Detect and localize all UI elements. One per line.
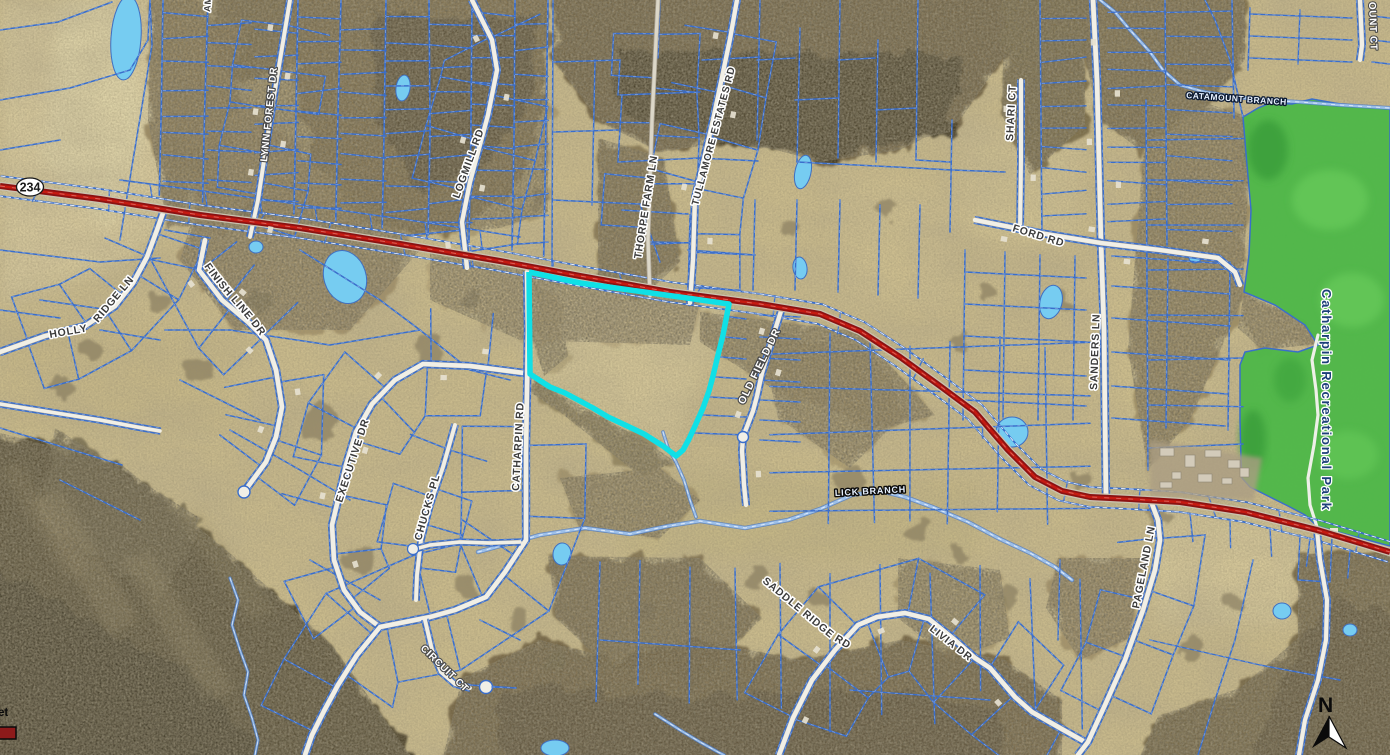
svg-text:OUNT CT: OUNT CT [1366,2,1379,51]
svg-text:et: et [0,707,8,719]
svg-text:N: N [1318,694,1333,717]
svg-text:Catharpin Recreational Park: Catharpin Recreational Park [1319,289,1334,512]
svg-text:AM: AM [202,0,213,12]
svg-text:234: 234 [20,181,41,195]
